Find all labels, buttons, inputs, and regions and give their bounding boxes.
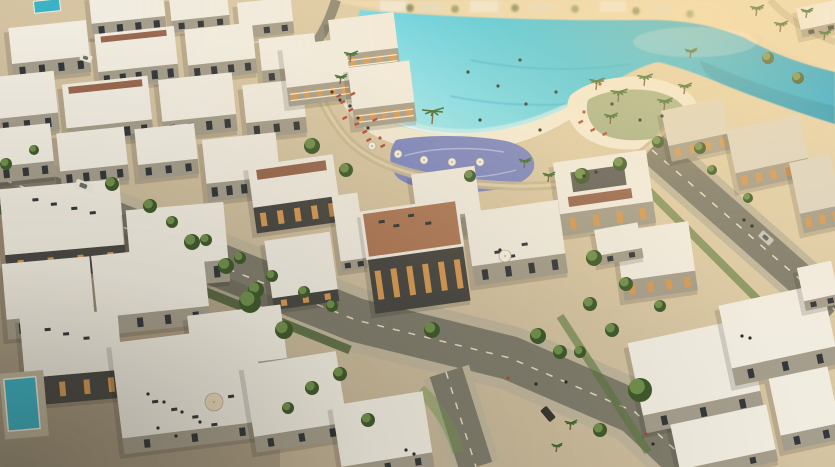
vignette-overlay	[0, 0, 835, 467]
scene-canvas	[0, 0, 835, 467]
aerial-render	[0, 0, 835, 467]
